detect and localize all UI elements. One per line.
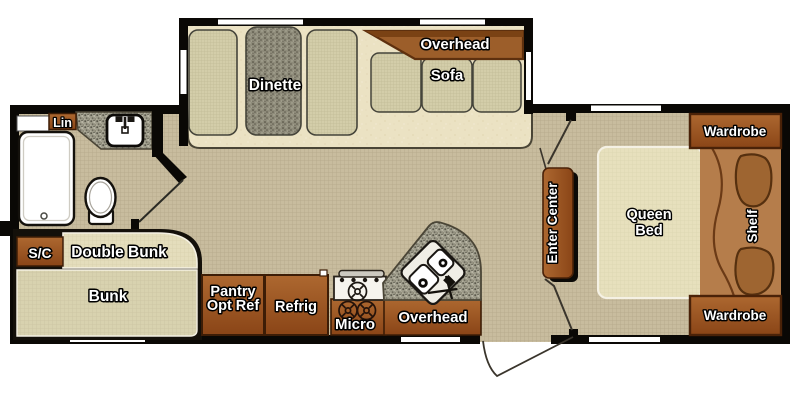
svg-text:Lin: Lin [53,116,72,130]
svg-text:Overhead: Overhead [420,36,489,53]
svg-text:Wardrobe: Wardrobe [704,308,767,323]
svg-text:Double Bunk: Double Bunk [71,244,167,261]
svg-text:S/C: S/C [28,245,51,261]
svg-text:Refrig: Refrig [275,299,317,315]
svg-text:Dinette: Dinette [249,77,302,94]
svg-text:Wardrobe: Wardrobe [704,124,767,139]
svg-text:Overhead: Overhead [398,309,467,326]
svg-text:Bunk: Bunk [89,288,128,305]
svg-text:Enter Center: Enter Center [545,182,560,264]
svg-text:Opt Ref: Opt Ref [207,298,260,314]
svg-text:Sofa: Sofa [431,67,464,84]
svg-text:Shelf: Shelf [745,209,760,243]
svg-text:Bed: Bed [635,223,662,239]
svg-text:Micro: Micro [335,316,375,333]
svg-text:Queen: Queen [626,207,671,223]
